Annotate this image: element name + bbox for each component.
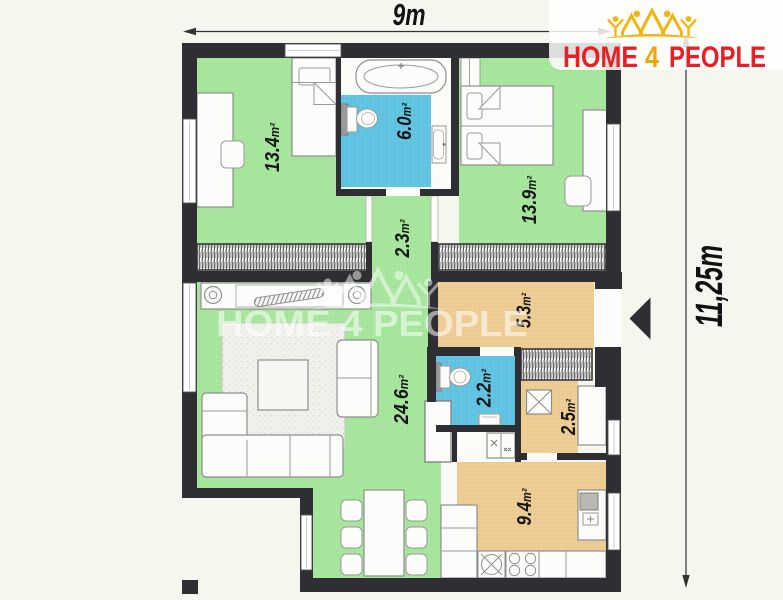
svg-text:4: 4 [645, 41, 659, 74]
svg-text:11,25m: 11,25m [689, 245, 731, 327]
svg-text:HOME: HOME [563, 41, 638, 74]
svg-text:PEOPLE: PEOPLE [669, 41, 766, 74]
svg-text:9m: 9m [393, 0, 426, 32]
svg-text:HOME 4 PEOPLE: HOME 4 PEOPLE [216, 303, 528, 344]
